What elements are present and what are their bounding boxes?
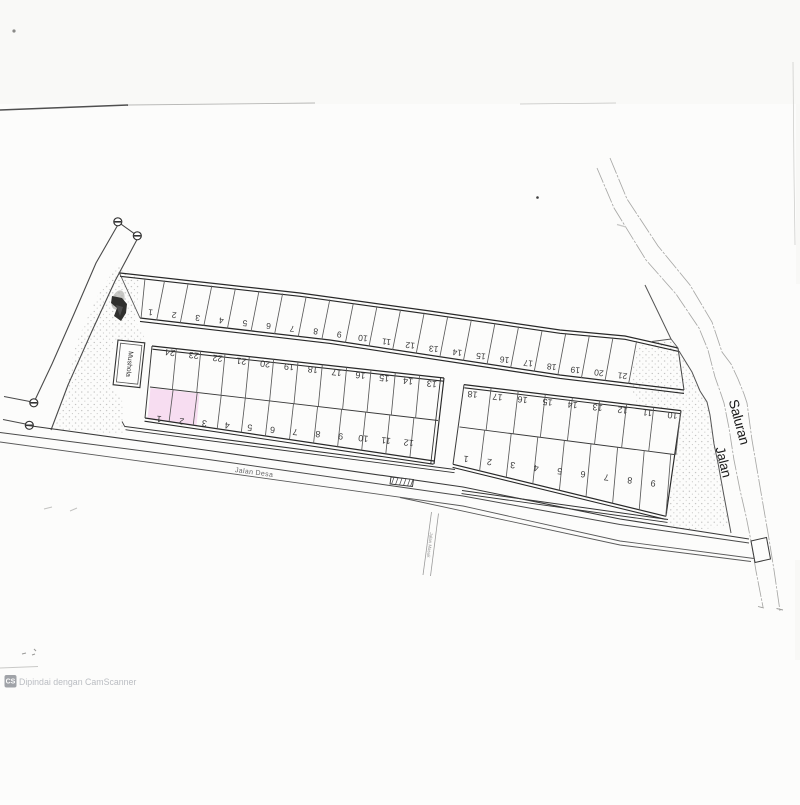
svg-text:11: 11 bbox=[381, 435, 391, 446]
svg-text:14: 14 bbox=[452, 347, 463, 358]
svg-text:23: 23 bbox=[188, 350, 199, 361]
svg-text:16: 16 bbox=[517, 394, 528, 405]
svg-text:22: 22 bbox=[212, 353, 223, 364]
svg-text:18: 18 bbox=[546, 361, 557, 372]
svg-text:13: 13 bbox=[428, 343, 439, 354]
svg-text:19: 19 bbox=[283, 361, 294, 372]
svg-text:17: 17 bbox=[523, 358, 534, 369]
svg-text:12: 12 bbox=[403, 437, 414, 448]
svg-text:14: 14 bbox=[567, 399, 578, 410]
svg-text:12: 12 bbox=[617, 405, 628, 416]
svg-text:19: 19 bbox=[570, 365, 581, 376]
svg-text:14: 14 bbox=[402, 376, 413, 387]
svg-text:Dipindai dengan CamScanner: Dipindai dengan CamScanner bbox=[19, 677, 136, 687]
svg-text:10: 10 bbox=[357, 333, 368, 344]
svg-text:10: 10 bbox=[667, 410, 678, 421]
svg-text:20: 20 bbox=[260, 358, 271, 369]
svg-text:20: 20 bbox=[593, 367, 604, 378]
svg-text:21: 21 bbox=[617, 370, 628, 381]
svg-text:21: 21 bbox=[236, 356, 247, 367]
svg-text:15: 15 bbox=[542, 397, 553, 408]
svg-text:11: 11 bbox=[381, 336, 391, 347]
svg-text:17: 17 bbox=[331, 367, 342, 378]
svg-text:13: 13 bbox=[426, 378, 437, 389]
svg-text:12: 12 bbox=[405, 340, 416, 351]
svg-text:18: 18 bbox=[467, 389, 478, 400]
svg-text:15: 15 bbox=[475, 351, 486, 362]
svg-text:16: 16 bbox=[499, 354, 510, 365]
svg-text:18: 18 bbox=[307, 364, 318, 375]
svg-text:17: 17 bbox=[492, 391, 503, 402]
svg-text:13: 13 bbox=[592, 402, 603, 413]
svg-text:CS: CS bbox=[6, 678, 16, 685]
svg-text:24: 24 bbox=[164, 347, 175, 358]
svg-text:15: 15 bbox=[379, 373, 390, 384]
svg-text:10: 10 bbox=[358, 433, 369, 444]
svg-text:16: 16 bbox=[355, 370, 366, 381]
svg-text:11: 11 bbox=[642, 407, 652, 418]
